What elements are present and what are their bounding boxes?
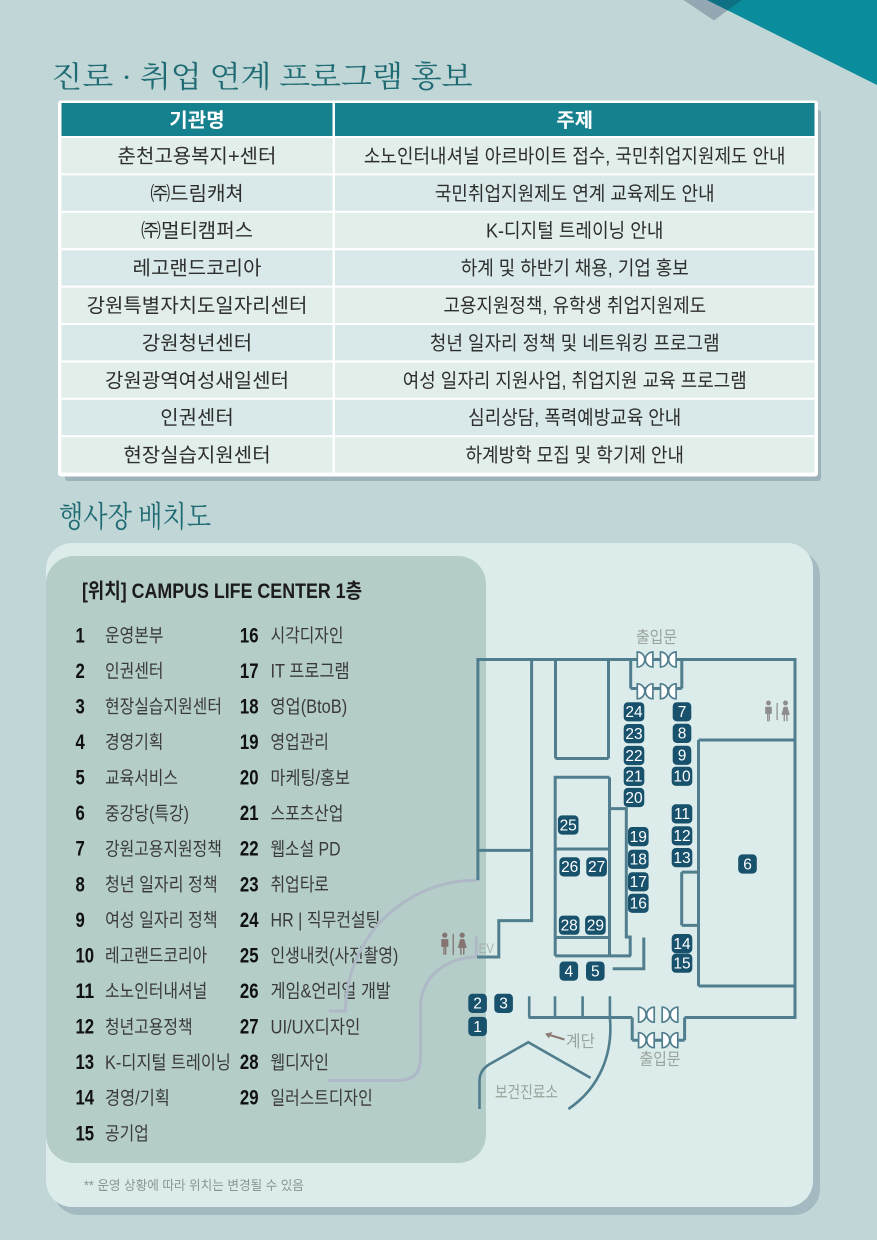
svg-text:계단: 계단: [566, 1032, 595, 1051]
svg-text:17: 17: [630, 874, 647, 891]
svg-text:25: 25: [240, 944, 259, 967]
svg-text:인생내컷(사진촬영): 인생내컷(사진촬영): [271, 946, 399, 967]
svg-text:5: 5: [76, 767, 86, 790]
svg-text:14: 14: [76, 1087, 95, 1110]
svg-text:K-디지털 트레이닝: K-디지털 트레이닝: [105, 1053, 231, 1074]
svg-text:웹디자인: 웹디자인: [271, 1053, 329, 1074]
svg-text:16: 16: [240, 624, 259, 647]
svg-text:춘천고용복지+센터: 춘천고용복지+센터: [118, 146, 277, 168]
svg-text:소노인터내셔널 아르바이트 접수, 국민취업지원제도 안내: 소노인터내셔널 아르바이트 접수, 국민취업지원제도 안내: [364, 146, 786, 168]
svg-text:25: 25: [560, 817, 577, 834]
svg-text:15: 15: [673, 956, 690, 973]
svg-text:11: 11: [76, 980, 95, 1003]
svg-text:일러스트디자인: 일러스트디자인: [271, 1088, 373, 1109]
svg-text:게임&언리얼 개발: 게임&언리얼 개발: [271, 982, 391, 1003]
svg-text:6: 6: [76, 802, 85, 825]
svg-text:22: 22: [240, 838, 259, 861]
svg-text:22: 22: [625, 748, 642, 765]
svg-text:경영/기획: 경영/기획: [105, 1088, 170, 1109]
svg-text:8: 8: [678, 726, 687, 743]
svg-text:㈜멀티캠퍼스: ㈜멀티캠퍼스: [141, 221, 253, 243]
svg-text:인권센터: 인권센터: [160, 408, 234, 430]
svg-text:7: 7: [678, 704, 687, 721]
svg-text:강원광역여성새일센터: 강원광역여성새일센터: [105, 370, 289, 392]
svg-text:24: 24: [240, 909, 259, 932]
svg-text:K-디지털 트레이닝 안내: K-디지털 트레이닝 안내: [486, 221, 664, 243]
svg-text:26: 26: [561, 859, 578, 876]
svg-text:교육서비스: 교육서비스: [105, 768, 178, 789]
svg-text:4: 4: [76, 731, 86, 754]
svg-text:하계 및 하반기 채용, 기업 홍보: 하계 및 하반기 채용, 기업 홍보: [461, 258, 689, 280]
svg-text:진로 · 취업 연계 프로그램 홍보: 진로 · 취업 연계 프로그램 홍보: [52, 61, 473, 94]
svg-text:마케팅/홍보: 마케팅/홍보: [271, 768, 351, 789]
svg-text:영업(BtoB): 영업(BtoB): [271, 697, 348, 718]
svg-text:레고랜드코리아: 레고랜드코리아: [105, 946, 207, 967]
svg-text:** 운영 상황에 따라 위치는 변경될 수 있음: ** 운영 상황에 따라 위치는 변경될 수 있음: [84, 1178, 304, 1193]
svg-text:운영본부: 운영본부: [105, 626, 163, 647]
svg-text:보건진료소: 보건진료소: [495, 1083, 558, 1102]
svg-text:HR | 직무컨설팅: HR | 직무컨설팅: [271, 911, 381, 932]
svg-text:기관명: 기관명: [169, 110, 224, 132]
svg-text:EV: EV: [479, 940, 495, 956]
svg-text:행사장 배치도: 행사장 배치도: [59, 501, 211, 534]
svg-text:청년고용정책: 청년고용정책: [105, 1017, 193, 1038]
svg-text:강원고용지원정책: 강원고용지원정책: [105, 839, 222, 860]
svg-text:24: 24: [625, 704, 643, 721]
svg-text:국민취업지원제도 연계 교육제도 안내: 국민취업지원제도 연계 교육제도 안내: [435, 183, 715, 205]
svg-text:1: 1: [76, 624, 86, 647]
svg-text:4: 4: [564, 963, 573, 980]
svg-text:7: 7: [76, 838, 85, 861]
svg-text:12: 12: [76, 1016, 95, 1039]
svg-text:경영기획: 경영기획: [105, 733, 163, 754]
svg-text:20: 20: [625, 790, 643, 807]
svg-text:IT 프로그램: IT 프로그램: [271, 662, 350, 683]
svg-text:인권센터: 인권센터: [105, 662, 163, 683]
svg-text:10: 10: [76, 944, 95, 967]
svg-text:1: 1: [473, 1019, 482, 1036]
svg-text:9: 9: [76, 909, 85, 932]
svg-text:레고랜드코리아: 레고랜드코리아: [133, 258, 262, 280]
svg-text:15: 15: [76, 1122, 95, 1145]
svg-text:웹소설 PD: 웹소설 PD: [271, 839, 341, 860]
svg-text:강원청년센터: 강원청년센터: [142, 333, 252, 355]
svg-text:출입문: 출입문: [636, 628, 677, 647]
svg-text:29: 29: [587, 918, 604, 935]
svg-text:28: 28: [561, 918, 578, 935]
svg-text:3: 3: [76, 695, 85, 718]
svg-text:2: 2: [473, 996, 482, 1013]
svg-text:청년 일자리 정책 및 네트워킹 프로그램: 청년 일자리 정책 및 네트워킹 프로그램: [430, 333, 720, 355]
svg-text:강원특별자치도일자리센터: 강원특별자치도일자리센터: [87, 296, 308, 318]
svg-text:9: 9: [678, 748, 687, 765]
svg-text:시각디자인: 시각디자인: [271, 626, 344, 647]
svg-text:11: 11: [674, 806, 690, 823]
svg-text:18: 18: [630, 852, 647, 869]
svg-text:28: 28: [240, 1051, 259, 1074]
svg-text:스포츠산업: 스포츠산업: [271, 804, 344, 825]
svg-text:5: 5: [591, 963, 600, 980]
svg-text:취업타로: 취업타로: [271, 875, 329, 896]
svg-text:27: 27: [588, 859, 605, 876]
svg-text:14: 14: [673, 936, 691, 953]
svg-text:2: 2: [76, 660, 85, 683]
svg-text:17: 17: [240, 660, 259, 683]
svg-text:㈜드림캐쳐: ㈜드림캐쳐: [150, 183, 244, 205]
svg-text:23: 23: [625, 726, 642, 743]
svg-text:주제: 주제: [556, 110, 593, 132]
svg-text:21: 21: [625, 769, 642, 786]
svg-text:13: 13: [673, 850, 690, 867]
svg-text:29: 29: [240, 1087, 259, 1110]
svg-text:20: 20: [240, 767, 259, 790]
svg-text:23: 23: [240, 873, 259, 896]
svg-text:19: 19: [630, 829, 647, 846]
svg-text:16: 16: [630, 896, 647, 913]
svg-text:[위치] CAMPUS LIFE CENTER 1층: [위치] CAMPUS LIFE CENTER 1층: [82, 580, 362, 603]
svg-text:6: 6: [743, 856, 752, 873]
svg-text:10: 10: [673, 769, 691, 786]
svg-text:고용지원정책, 유학생 취업지원제도: 고용지원정책, 유학생 취업지원제도: [443, 296, 706, 318]
svg-text:소노인터내셔널: 소노인터내셔널: [105, 982, 207, 1003]
svg-text:8: 8: [76, 873, 86, 896]
svg-text:3: 3: [499, 996, 508, 1013]
svg-text:21: 21: [240, 802, 259, 825]
svg-text:청년 일자리 정책: 청년 일자리 정책: [105, 875, 218, 896]
svg-text:UI/UX디자인: UI/UX디자인: [271, 1017, 361, 1038]
svg-text:중강당(특강): 중강당(특강): [105, 804, 189, 825]
svg-text:출입문: 출입문: [640, 1050, 681, 1069]
svg-text:하계방학 모집 및 학기제 안내: 하계방학 모집 및 학기제 안내: [465, 445, 684, 467]
svg-text:심리상담, 폭력예방교육 안내: 심리상담, 폭력예방교육 안내: [468, 408, 681, 430]
svg-text:27: 27: [240, 1016, 259, 1039]
svg-text:13: 13: [76, 1051, 95, 1074]
svg-text:영업관리: 영업관리: [271, 733, 329, 754]
svg-text:공기업: 공기업: [105, 1124, 149, 1145]
svg-text:여성 일자리 정책: 여성 일자리 정책: [105, 911, 218, 932]
svg-text:현장실습지원센터: 현장실습지원센터: [105, 697, 222, 718]
svg-text:26: 26: [240, 980, 259, 1003]
svg-text:현장실습지원센터: 현장실습지원센터: [123, 445, 270, 467]
svg-text:18: 18: [240, 695, 259, 718]
svg-text:여성 일자리 지원사업, 취업지원 교육 프로그램: 여성 일자리 지원사업, 취업지원 교육 프로그램: [403, 370, 747, 392]
svg-text:19: 19: [240, 731, 259, 754]
svg-text:12: 12: [673, 828, 690, 845]
